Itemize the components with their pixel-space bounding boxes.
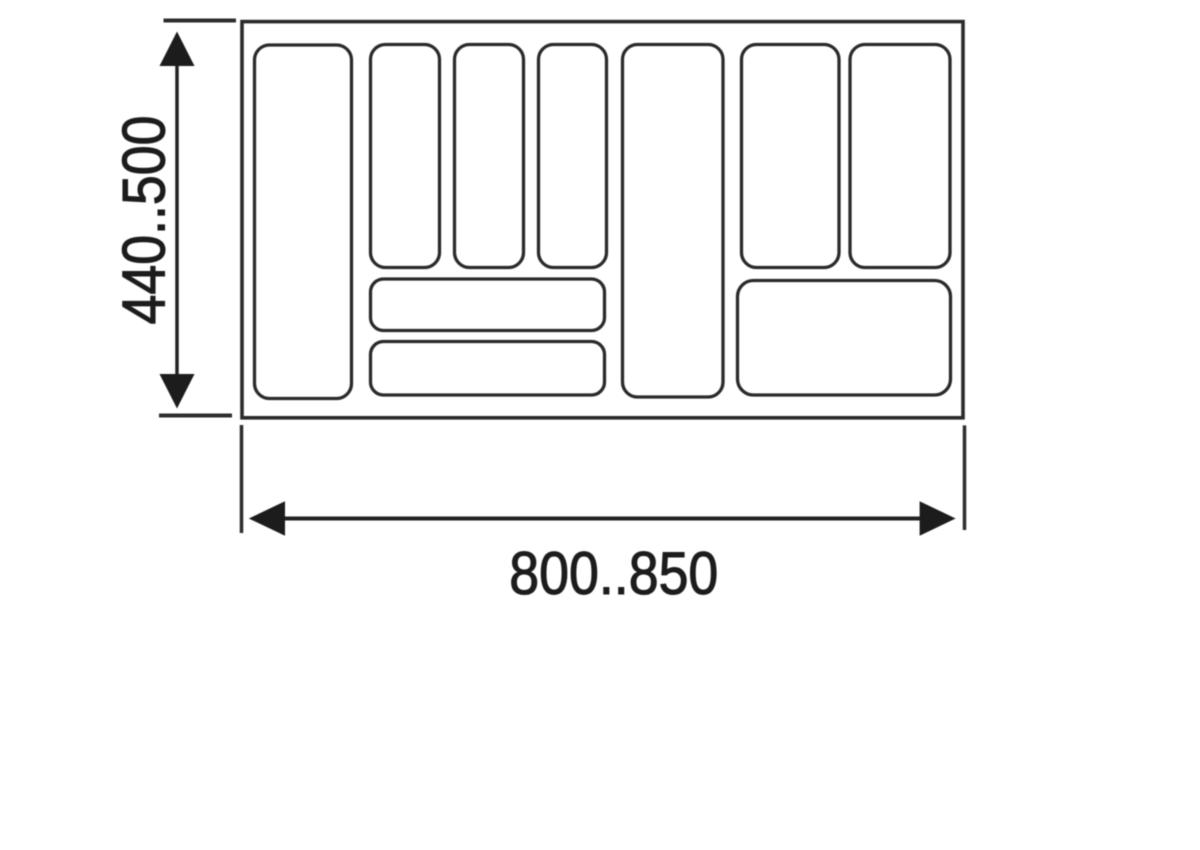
svg-text:440..500: 440..500: [110, 116, 177, 325]
svg-text:800..850: 800..850: [509, 540, 718, 607]
